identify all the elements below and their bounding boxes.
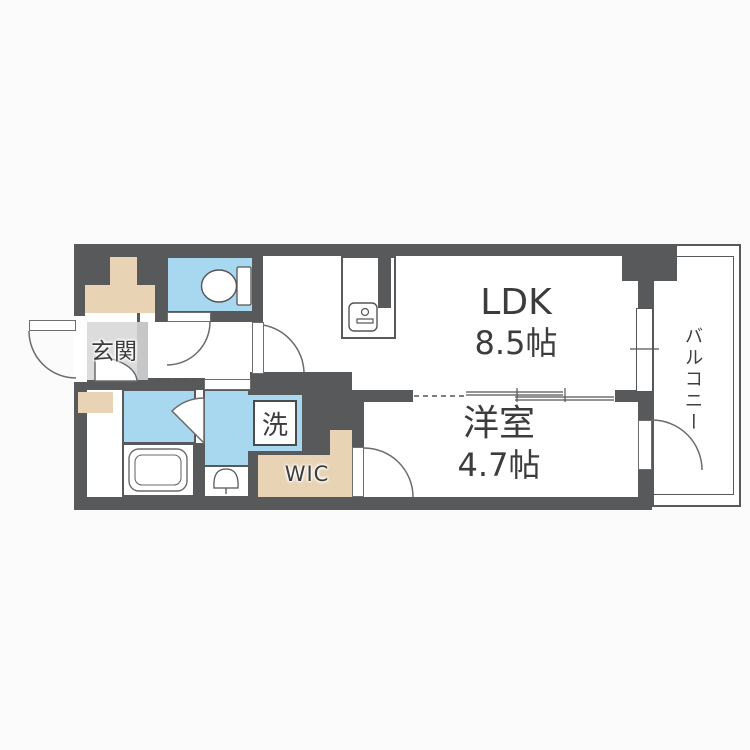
ldk-window [636, 308, 653, 392]
ldk-label: LDK [480, 282, 551, 323]
bathroom-floor [122, 389, 196, 444]
wic-label-box: WIC [276, 461, 338, 487]
washroom-floor [203, 389, 250, 467]
genkan-label-box: 玄関 [83, 336, 145, 362]
shoe-cabinet-bar [85, 285, 155, 314]
balcony-label-box: バルコニー [677, 314, 707, 446]
toilet-door-leaf [167, 312, 211, 322]
laundry-box: 洗 [253, 400, 297, 446]
wall-right-b [638, 391, 652, 421]
entrance-door-leaf [29, 320, 76, 331]
wall-tub-right [194, 443, 203, 497]
washing-machine-pan [203, 465, 250, 498]
balcony-label: バルコニー [679, 326, 705, 434]
floor-plan: 洗 [0, 0, 750, 750]
ldk-label-box: LDK [446, 283, 586, 321]
kitchen-duct-stub [378, 252, 391, 308]
wall-western-top-left [352, 390, 413, 402]
ldk-door-leaf [252, 322, 264, 374]
wic-label: WIC [285, 462, 330, 486]
ldk-size-box: 8.5帖 [446, 323, 586, 359]
entrance-door-swing-arc [29, 331, 76, 378]
wic-floor-stem [330, 430, 352, 455]
western-label-box: 洋室 [429, 401, 569, 439]
western-size-box: 4.7帖 [429, 445, 569, 481]
ldk-size: 8.5帖 [475, 318, 558, 364]
bathtub-area [122, 443, 195, 497]
wall-right-c [638, 470, 652, 510]
genkan-label: 玄関 [91, 332, 137, 366]
western-room-size: 4.7帖 [458, 440, 541, 486]
wall-right-a [638, 280, 652, 310]
storage-square [78, 392, 113, 413]
counter-divider [137, 313, 140, 322]
wall-corner-chunk [622, 256, 677, 281]
laundry-label: 洗 [262, 405, 288, 442]
western-room-label: 洋室 [463, 394, 535, 446]
shoe-cabinet-counter [85, 313, 155, 322]
wall-bottom [74, 497, 648, 510]
wall-toilet-bottom [210, 312, 252, 322]
shoe-cabinet-stem [110, 257, 137, 288]
wall-top [74, 244, 677, 256]
wic-door-leaf [352, 447, 364, 497]
toilet-room [166, 256, 254, 313]
balcony-door-leaf [638, 420, 652, 470]
washroom-door-leaf [204, 379, 251, 390]
